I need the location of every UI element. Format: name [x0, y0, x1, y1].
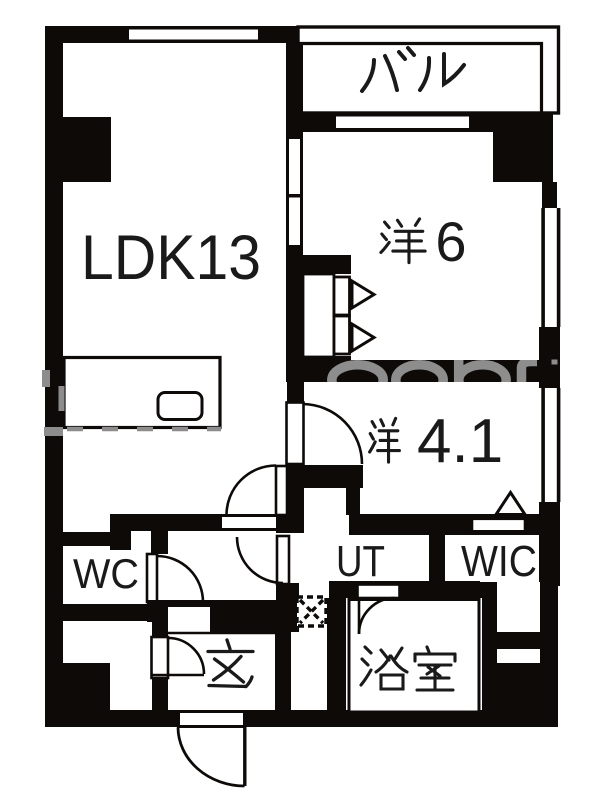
svg-text:WIC: WIC: [461, 537, 537, 586]
svg-text:6: 6: [435, 210, 466, 273]
svg-text:LDK13: LDK13: [81, 223, 261, 293]
svg-text:4.1: 4.1: [417, 407, 503, 476]
svg-text:UT: UT: [336, 537, 385, 586]
svg-text:WC: WC: [73, 550, 139, 597]
